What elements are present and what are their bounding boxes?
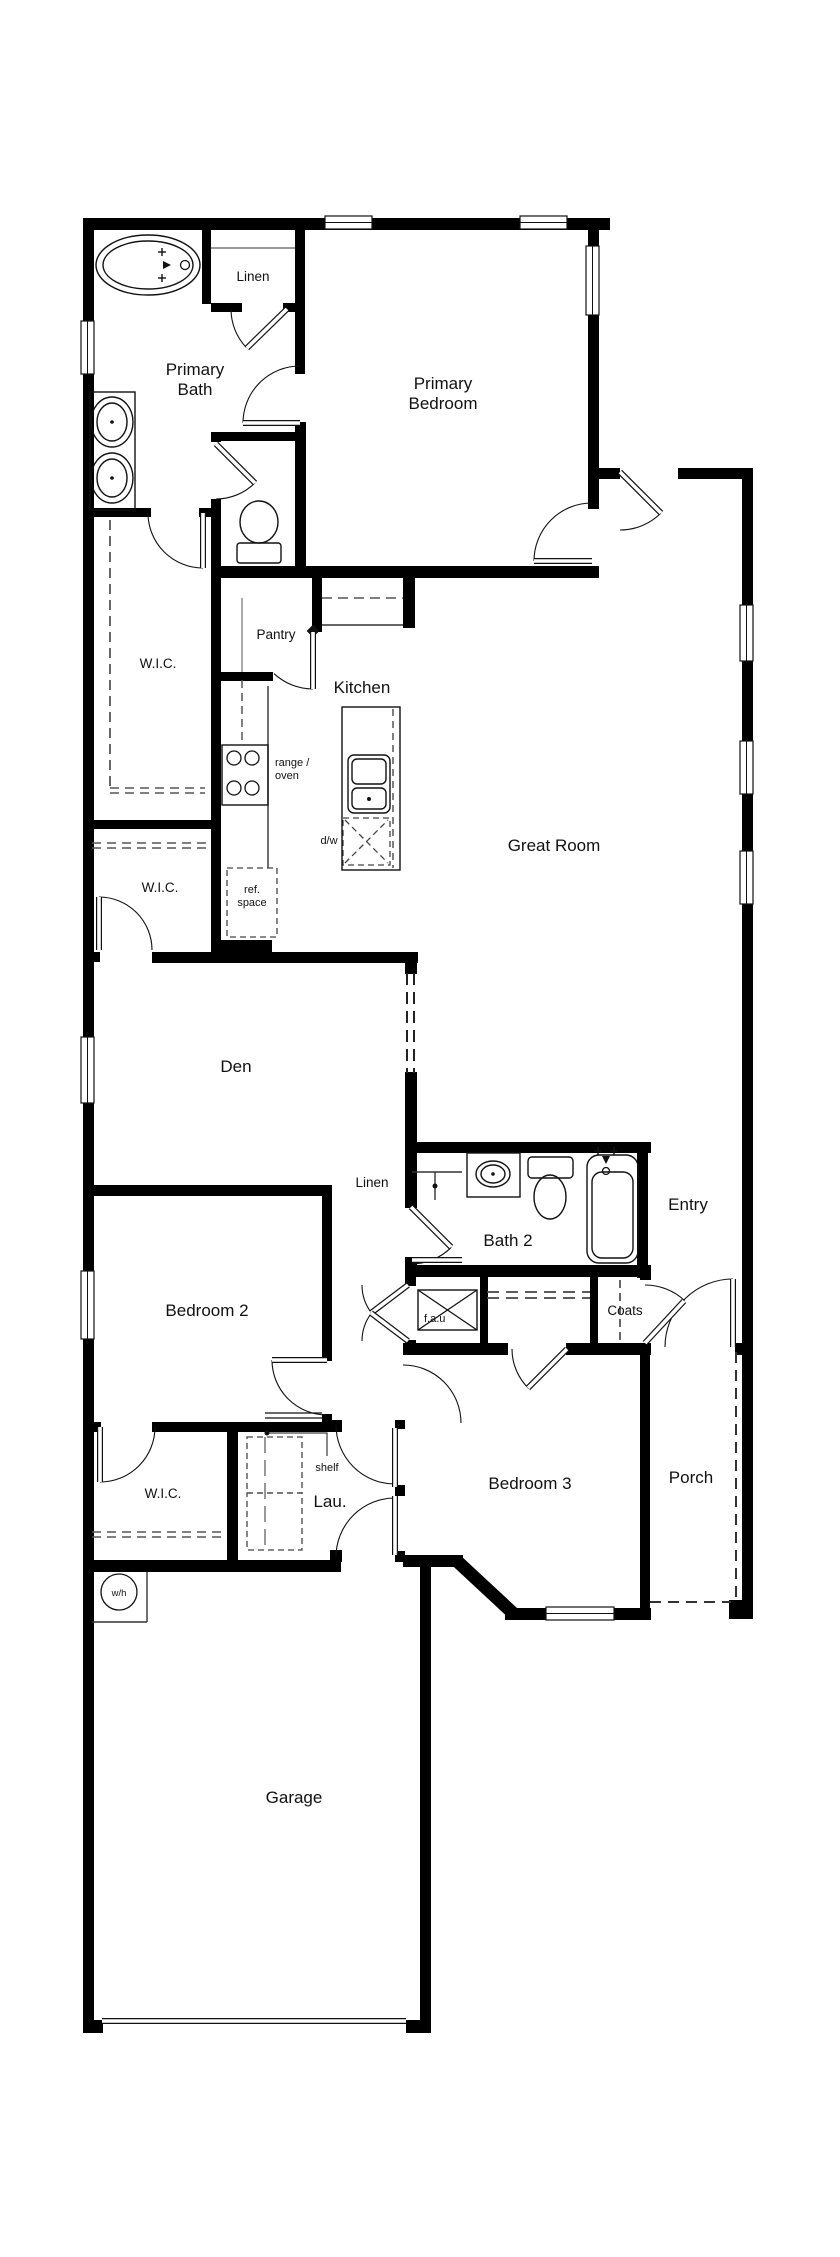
- door-swing-arc: [620, 513, 661, 530]
- wall: [152, 952, 220, 963]
- fixture: [352, 759, 386, 784]
- wall: [218, 952, 418, 963]
- dashed-box: [247, 1493, 302, 1550]
- wall: [640, 1265, 651, 1280]
- fixture-circle: [227, 751, 241, 765]
- label-shelf: shelf: [315, 1462, 339, 1474]
- door-swing-arc: [99, 897, 152, 950]
- dot: [491, 1172, 495, 1176]
- label-ref-space: ref.space: [237, 884, 266, 909]
- wall: [405, 1265, 651, 1277]
- door-leaf-inner: [216, 444, 255, 483]
- fixture: [587, 1155, 638, 1263]
- fixture: [90, 392, 135, 510]
- fixture: [592, 1172, 633, 1258]
- wall: [735, 1343, 753, 1355]
- wall: [83, 218, 94, 2032]
- fixture-circle: [181, 261, 190, 270]
- door-swing-arc: [534, 503, 592, 561]
- fixture-ellipse: [534, 1175, 566, 1219]
- door-swing-arc: [216, 483, 255, 499]
- wall: [322, 1185, 332, 1361]
- wall: [92, 952, 100, 962]
- wall: [218, 940, 272, 953]
- wall: [480, 1277, 488, 1348]
- label-linen-2: Linen: [355, 1175, 388, 1190]
- label-dw: d/w: [320, 835, 337, 847]
- wall: [83, 2020, 103, 2033]
- door-swing-arc: [274, 674, 313, 689]
- wall: [83, 1560, 341, 1572]
- label-wic-2: W.I.C.: [142, 880, 179, 895]
- label-bedroom-2: Bedroom 2: [165, 1301, 248, 1320]
- dot: [367, 797, 371, 801]
- door-swing-arc: [336, 1425, 395, 1484]
- wall: [420, 1561, 431, 2033]
- wall: [227, 1422, 238, 1570]
- door-swing-arc: [512, 1349, 529, 1389]
- door-leaf-inner: [620, 472, 661, 513]
- label-kitchen: Kitchen: [334, 678, 391, 697]
- floor-plan-page: PrimaryBathLinenPrimaryBedroomW.I.C.Pant…: [0, 0, 840, 2257]
- floor-plan-canvas: PrimaryBathLinenPrimaryBedroomW.I.C.Pant…: [0, 0, 840, 2257]
- door-swing-arc: [645, 1285, 685, 1301]
- wall: [221, 672, 273, 681]
- label-range-oven: range /oven: [275, 757, 310, 782]
- wall: [405, 1196, 417, 1208]
- fixture-circle: [245, 751, 259, 765]
- label-bedroom-3: Bedroom 3: [488, 1474, 571, 1493]
- door-leaf-inner: [371, 1285, 408, 1313]
- fixture-ellipse: [103, 241, 193, 289]
- label-wic-1: W.I.C.: [140, 656, 177, 671]
- label-pantry: Pantry: [256, 627, 295, 642]
- fixture-circle: [245, 781, 259, 795]
- wall: [403, 1555, 463, 1567]
- dashed-box: [247, 1437, 302, 1493]
- wall: [395, 1420, 405, 1429]
- label-garage: Garage: [266, 1788, 323, 1807]
- label-entry: Entry: [668, 1195, 708, 1214]
- fixture-circle: [603, 1168, 610, 1175]
- wall: [405, 1072, 417, 1148]
- label-wic-3: W.I.C.: [145, 1486, 182, 1501]
- dot: [433, 1184, 438, 1189]
- wall: [405, 952, 417, 974]
- label-wh: w/h: [111, 1588, 127, 1599]
- label-porch: Porch: [669, 1468, 713, 1487]
- door-swing-arc: [362, 1313, 371, 1341]
- door-swing-arc: [403, 1365, 461, 1423]
- wall: [598, 468, 620, 479]
- label-den: Den: [220, 1057, 251, 1076]
- label-linen-1: Linen: [236, 269, 269, 284]
- label-great-room: Great Room: [508, 836, 601, 855]
- door-swing-arc: [243, 366, 300, 423]
- wall: [403, 1343, 508, 1355]
- door-leaf-inner: [371, 1313, 408, 1341]
- wall: [405, 1148, 417, 1198]
- door-swing-arc: [148, 513, 203, 568]
- wall: [312, 573, 322, 632]
- fixture: [237, 543, 281, 563]
- wall: [295, 422, 306, 570]
- label-fau: f.a.u: [424, 1313, 445, 1325]
- door-leaf-inner: [645, 1301, 684, 1343]
- label-primary-bath: PrimaryBath: [166, 360, 225, 399]
- wall: [92, 820, 215, 829]
- wall: [211, 432, 221, 442]
- door-leaf-inner: [247, 309, 287, 348]
- label-primary-bedroom: PrimaryBedroom: [409, 374, 478, 413]
- wall: [211, 432, 305, 441]
- label-bath-2: Bath 2: [483, 1231, 532, 1250]
- wall: [590, 1277, 598, 1348]
- wall: [83, 1185, 329, 1196]
- dot: [110, 420, 114, 424]
- door-leaf-inner: [411, 1207, 451, 1247]
- wall: [295, 218, 305, 374]
- label-lau: Lau.: [313, 1492, 346, 1511]
- door-swing-arc: [272, 1360, 327, 1415]
- label-coats: Coats: [607, 1303, 643, 1318]
- wall: [678, 468, 753, 479]
- door-leaf-inner: [528, 1349, 567, 1388]
- faucet-triangle-icon: [163, 261, 171, 269]
- door-swing-arc: [100, 1427, 155, 1482]
- wall: [202, 228, 211, 304]
- wall-diagonal: [458, 1562, 515, 1615]
- wall: [211, 303, 242, 312]
- dot: [110, 476, 114, 480]
- fixture-ellipse: [240, 501, 278, 543]
- door-swing-arc: [362, 1285, 371, 1313]
- fixture-ellipse: [96, 235, 200, 295]
- faucet-triangle-icon: [602, 1156, 610, 1164]
- wall: [640, 1355, 650, 1620]
- wall: [403, 573, 415, 628]
- fixture-circle: [227, 781, 241, 795]
- wall: [566, 1343, 651, 1355]
- door-swing-arc: [231, 309, 246, 347]
